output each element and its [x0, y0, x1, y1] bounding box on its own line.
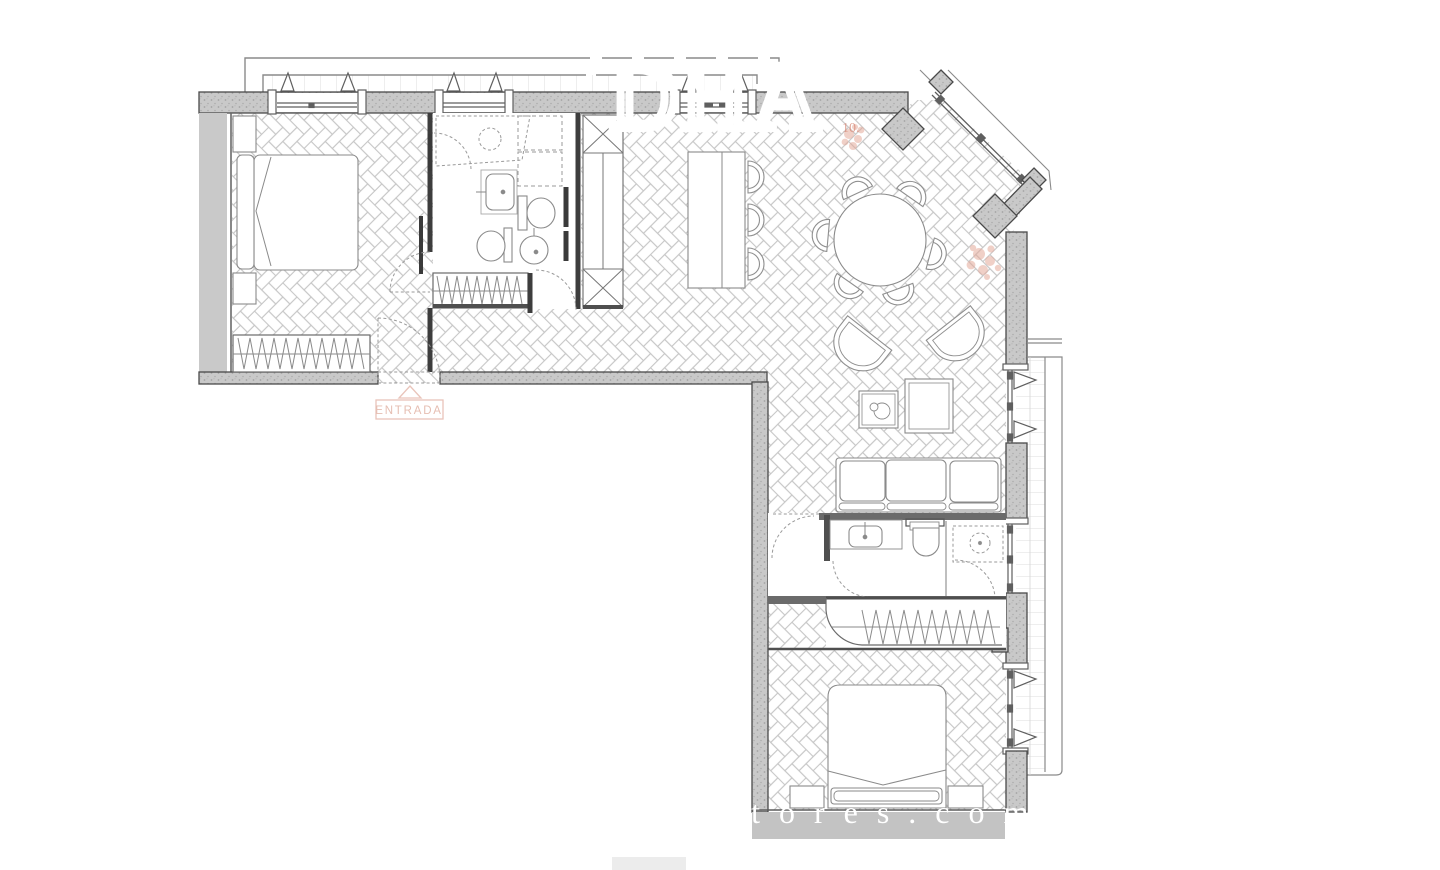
- svg-text:altores.com: altores.com: [690, 794, 1047, 830]
- svg-text:DHA: DHA: [610, 45, 823, 149]
- svg-text:10.: 10.: [842, 121, 860, 136]
- svg-text:ENTRADA: ENTRADA: [375, 405, 443, 417]
